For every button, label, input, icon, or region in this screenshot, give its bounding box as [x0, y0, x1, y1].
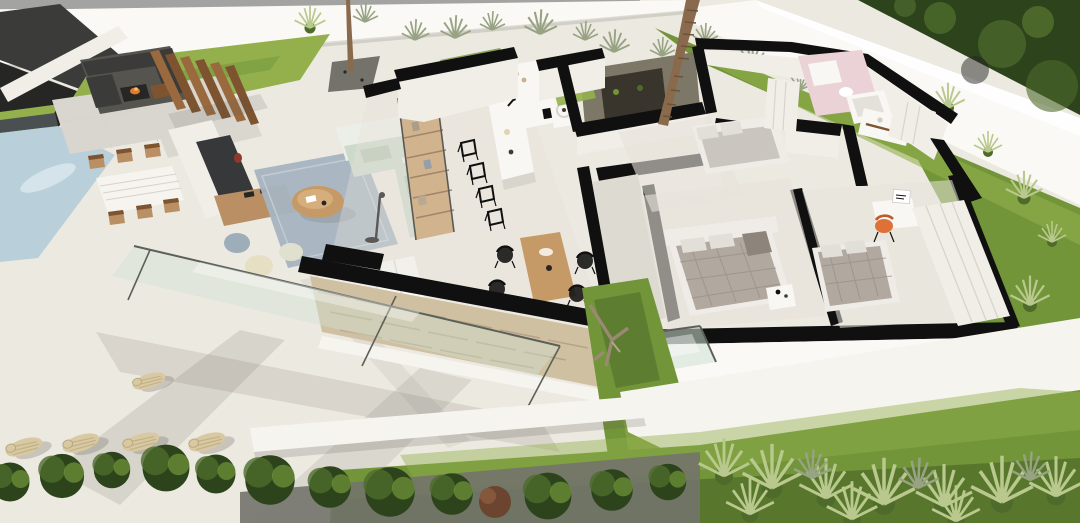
wardrobe	[764, 78, 800, 132]
vanity	[808, 60, 842, 86]
label-box	[893, 189, 911, 203]
orange-chair	[875, 219, 893, 233]
pouf-pale	[279, 243, 303, 261]
red-vase	[234, 153, 242, 163]
pillow	[844, 240, 867, 254]
floorplan-render	[0, 0, 1080, 523]
pouf-slate	[224, 233, 250, 253]
floorplan-svg	[0, 0, 1080, 523]
table-vase	[546, 265, 552, 271]
nightstand-lamp	[776, 290, 781, 295]
pillow	[820, 244, 843, 258]
nightstand	[766, 284, 796, 310]
